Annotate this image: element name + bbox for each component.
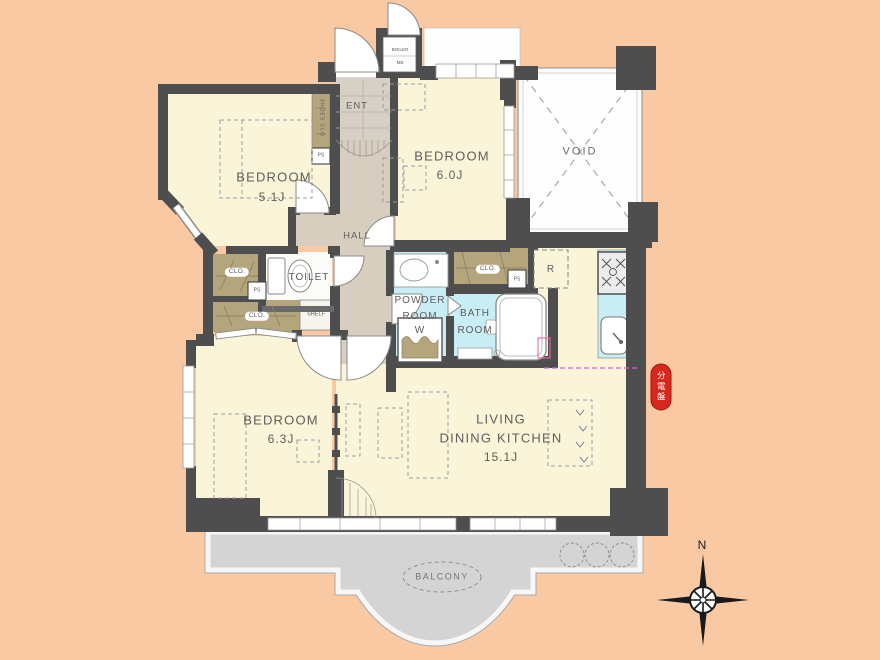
floor-plan: BEDROOM 5.1J BEDROOM 6.0J BEDROOM 6.3J L… bbox=[0, 0, 880, 660]
ldk-size: 15.1J bbox=[484, 451, 518, 463]
bedroom-a-size: 5.1J bbox=[259, 191, 286, 203]
closet-label-3: CLO. bbox=[476, 265, 500, 274]
shelf-label: SHELF bbox=[307, 312, 325, 318]
ldk-label-line1: LIVING bbox=[476, 413, 526, 426]
powder-room-label-line2: ROOM bbox=[402, 312, 437, 322]
bedroom-c-label: BEDROOM bbox=[243, 414, 319, 427]
refrigerator-label: R bbox=[547, 265, 555, 275]
meter-box-label: MB bbox=[397, 61, 404, 66]
distribution-board-label: 分電盤 bbox=[657, 371, 666, 403]
compass-north-label: N bbox=[698, 539, 707, 551]
boiler-closet bbox=[383, 37, 416, 72]
closet-label-1: CLO. bbox=[225, 268, 249, 277]
boiler-label: BOILER bbox=[392, 48, 409, 53]
hall-label: HALL bbox=[343, 231, 371, 241]
kitchen-counter bbox=[598, 250, 628, 358]
bedroom-b-label: BEDROOM bbox=[414, 150, 490, 163]
stove bbox=[598, 252, 628, 294]
kitchen-sink bbox=[601, 317, 627, 354]
shoes-closet-label: SHOES CLO. bbox=[319, 99, 324, 140]
pipe-space-label-2: PS bbox=[318, 154, 325, 159]
floor-plan-drawing bbox=[0, 0, 880, 660]
balcony-label: BALCONY bbox=[415, 573, 469, 582]
washing-machine-label: W bbox=[415, 326, 425, 336]
pipe-space-label-1: PS bbox=[254, 289, 261, 294]
ldk-label-line2: DINING KITCHEN bbox=[440, 432, 563, 445]
entrance-label: ENT bbox=[346, 101, 368, 111]
pipe-space-label-3: PS bbox=[514, 278, 521, 283]
bath-room-label-line1: BATH bbox=[460, 309, 490, 319]
bedroom-a-label: BEDROOM bbox=[236, 171, 312, 184]
closet-label-2: CLO. bbox=[245, 312, 269, 321]
void-label: VOID bbox=[563, 147, 598, 158]
powder-room-label-line1: POWDER bbox=[395, 296, 446, 306]
bedroom-b-size: 6.0J bbox=[437, 169, 464, 181]
bath-room-label-line2: ROOM bbox=[457, 326, 492, 336]
toilet-label: TOILET bbox=[289, 273, 330, 283]
bedroom-c-size: 6.3J bbox=[268, 433, 295, 445]
